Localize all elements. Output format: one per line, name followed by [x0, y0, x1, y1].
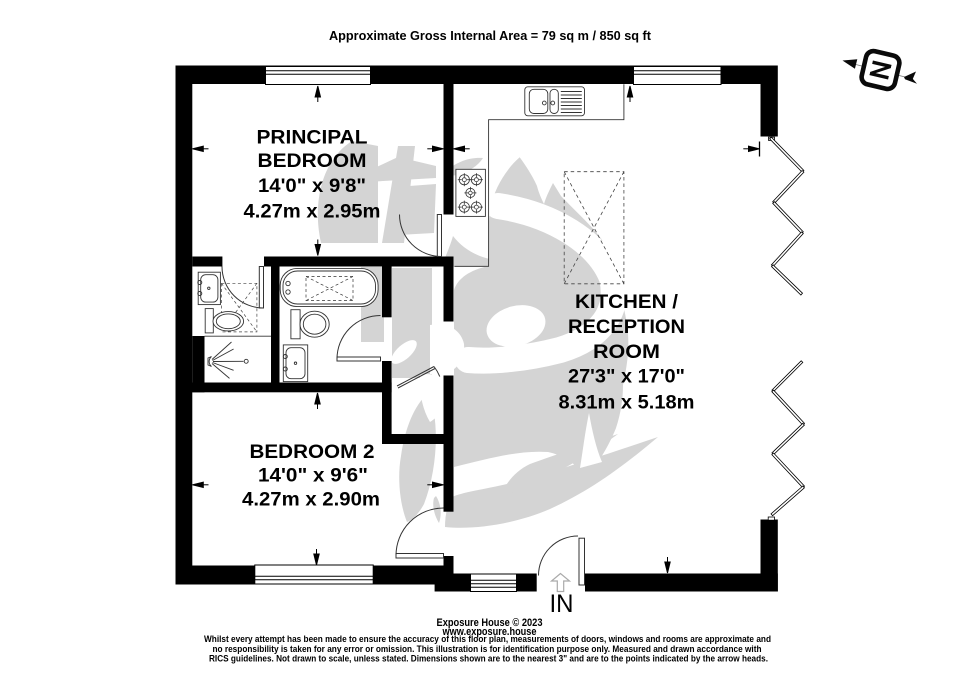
svg-text:27'3" x 17'0": 27'3" x 17'0"	[568, 367, 685, 388]
svg-text:IN: IN	[550, 590, 574, 618]
svg-text:8.31m x 5.18m: 8.31m x 5.18m	[559, 392, 695, 413]
svg-text:14'0" x 9'8": 14'0" x 9'8"	[258, 176, 366, 197]
svg-text:4.27m x 2.95m: 4.27m x 2.95m	[244, 201, 381, 222]
svg-text:BEDROOM 2: BEDROOM 2	[250, 442, 375, 463]
svg-text:BEDROOM: BEDROOM	[258, 151, 367, 172]
svg-text:no responsibility is taken for: no responsibility is taken for any error…	[213, 644, 762, 654]
svg-text:4.27m x 2.90m: 4.27m x 2.90m	[242, 489, 380, 510]
svg-text:14'0" x 9'6": 14'0" x 9'6"	[258, 465, 368, 486]
svg-text:Approximate Gross Internal Are: Approximate Gross Internal Area = 79 sq …	[329, 28, 652, 43]
svg-text:KITCHEN /: KITCHEN /	[575, 292, 679, 313]
svg-text:RICS guidelines. Not drawn to: RICS guidelines. Not drawn to scale, unl…	[209, 654, 768, 664]
svg-text:ROOM: ROOM	[593, 342, 660, 363]
svg-text:PRINCIPAL: PRINCIPAL	[257, 127, 368, 148]
svg-text:Whilst every attempt has been: Whilst every attempt has been made to en…	[204, 634, 771, 644]
svg-text:RECEPTION: RECEPTION	[568, 317, 685, 338]
